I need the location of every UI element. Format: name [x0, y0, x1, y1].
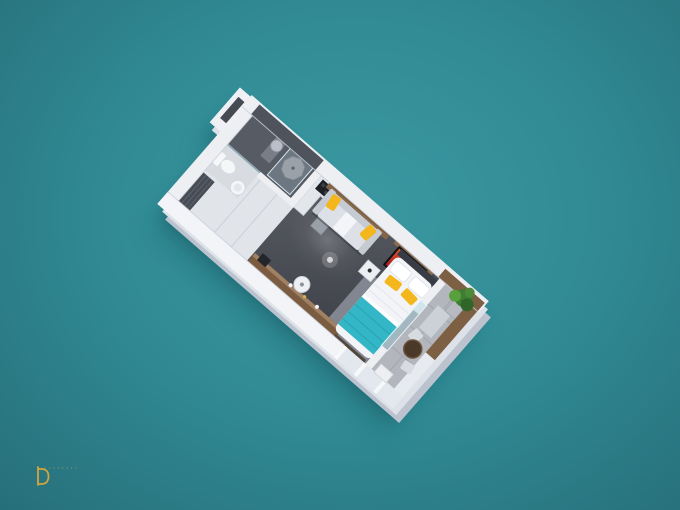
render-canvas: •••••••• — [0, 0, 680, 510]
floorplan-scene — [0, 0, 680, 510]
brand-wordmark: •••••••• — [44, 466, 79, 470]
brand-logo: •••••••• — [36, 466, 88, 470]
